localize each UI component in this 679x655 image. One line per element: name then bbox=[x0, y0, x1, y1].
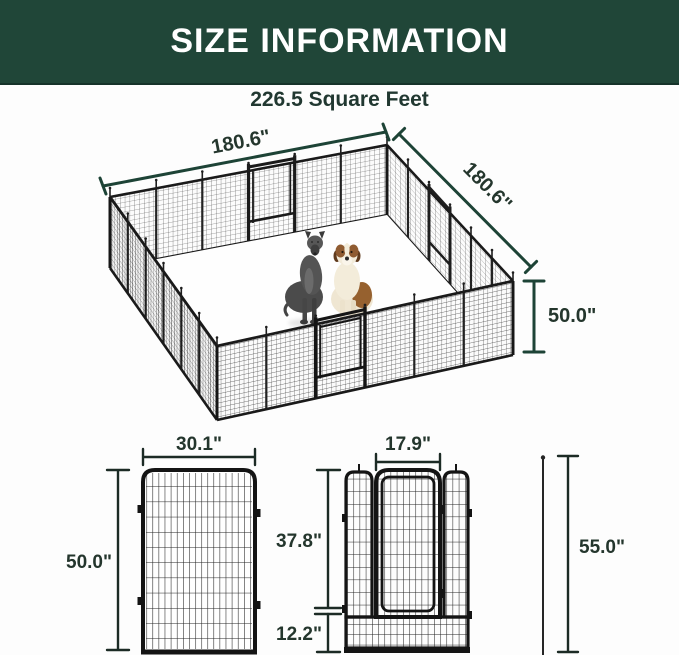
dimension-panel-height: 50.0" bbox=[66, 470, 129, 650]
stake-height-label: 55.0" bbox=[579, 537, 625, 558]
panel-width-label: 30.1" bbox=[176, 434, 222, 455]
gate-diagram: 17.9" 37.8" 12.2" bbox=[276, 434, 472, 652]
dimension-door-height: 37.8" bbox=[276, 470, 341, 614]
door-height-label: 37.8" bbox=[276, 531, 322, 552]
side1-dimension-label: 180.6" bbox=[210, 126, 273, 159]
bottom-height-label: 12.2" bbox=[276, 624, 322, 645]
pen-diagram-canvas: 180.6" 180.6" 50.0" 30 bbox=[0, 0, 679, 655]
dimension-pen-height: 50.0" bbox=[524, 281, 596, 352]
door-width-label: 17.9" bbox=[385, 434, 431, 455]
panel-diagram: 30.1" 50.0" bbox=[66, 434, 261, 652]
size-information-infographic: SIZE INFORMATION 226.5 Square Feet bbox=[0, 0, 679, 655]
pen-illustration: 180.6" 180.6" 50.0" bbox=[100, 124, 596, 420]
pen-height-dimension-label: 50.0" bbox=[548, 305, 596, 327]
dimension-bottom-height: 12.2" bbox=[276, 614, 340, 652]
panel-height-label: 50.0" bbox=[66, 552, 112, 573]
dimension-door-width: 17.9" bbox=[376, 434, 440, 470]
dimension-stake-height: 55.0" bbox=[558, 456, 625, 652]
side2-dimension-label: 180.6" bbox=[458, 158, 516, 216]
stake-diagram: 55.0" bbox=[541, 455, 625, 655]
stake-tip bbox=[541, 455, 545, 459]
dimension-panel-width: 30.1" bbox=[143, 434, 255, 465]
